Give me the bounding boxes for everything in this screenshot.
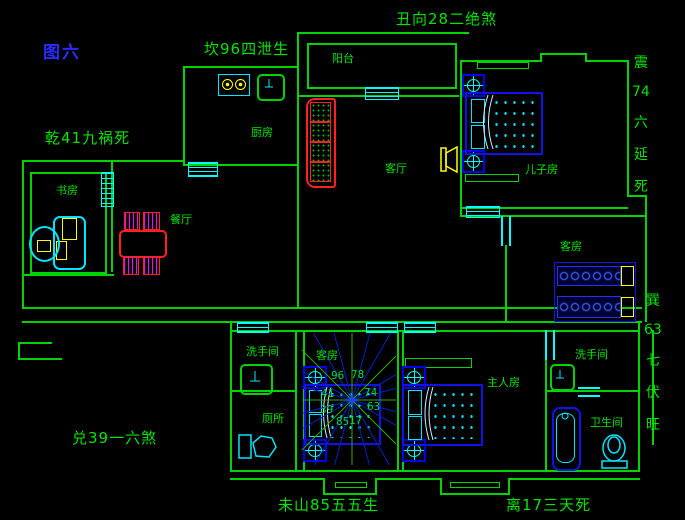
luopan-number: 78 [351,368,364,381]
fengshui-label-mid-left: 乾41九祸死 [45,127,130,148]
fengshui-label-bottom-right: 离17三天死 [506,494,591,515]
luopan-center [349,397,355,403]
luopan-number: 96 [331,369,344,382]
toilet-icon [239,435,276,458]
fengshui-label-bottom-left: 未山85五五生 [278,494,379,515]
vtext-char: 震 [634,52,648,72]
vtext-char: 74 [632,84,650,100]
faucet-icon [250,79,568,419]
luopan-line [335,400,352,465]
room-label-living: 客厅 [385,163,407,175]
figure-title: 图六 [43,38,81,63]
vtext-char: 伏 [646,382,660,402]
fengshui-label-right-lower: 巽 63 七 伏 旺 [644,290,662,434]
vtext-char: 巽 [646,290,660,310]
luopan-number: 41 [321,387,334,400]
room-label-son-room: 儿子房 [525,164,558,176]
luopan-number: 17 [349,414,362,427]
fengshui-label-lower-left: 兑39一六煞 [72,427,157,448]
room-label-guest-right: 客房 [560,241,582,253]
room-label-washroom-left: 洗手间 [246,346,279,358]
room-label-study: 书房 [56,185,78,197]
room-label-balcony: 阳台 [332,53,354,65]
vtext-char: 63 [644,322,662,338]
room-label-washroom-right: 洗手间 [575,349,608,361]
luopan-number: 39 [320,403,333,416]
room-label-dining: 餐厅 [170,214,192,226]
room-label-bathroom-right: 卫生间 [590,417,623,429]
luopan-number: 85 [336,415,349,428]
vtext-char: 延 [634,144,648,164]
toilet-icon [602,435,627,468]
room-label-kitchen: 厨房 [251,127,273,139]
luopan-number: 63 [367,400,380,413]
room-label-toilet-left: 厕所 [262,413,284,425]
fengshui-label-right-upper: 震 74 六 延 死 [632,52,650,196]
tv-icon [441,147,457,172]
luopan-number: 74 [364,386,377,399]
floor-plan-canvas: 图六 丑向28二绝煞 坎96四泄生 乾41九祸死 兑39一六煞 未山85五五生 … [0,0,685,520]
fengshui-label-top: 丑向28二绝煞 [396,8,497,29]
room-label-master: 主人房 [487,377,520,389]
vtext-char: 七 [646,350,660,370]
vtext-char: 旺 [646,414,660,434]
fengshui-label-upper-left: 坎96四泄生 [204,38,289,59]
luopan-line [334,333,352,400]
vtext-char: 死 [634,176,648,196]
vtext-char: 六 [634,112,648,132]
room-label-guest-mid: 客房 [316,350,338,362]
